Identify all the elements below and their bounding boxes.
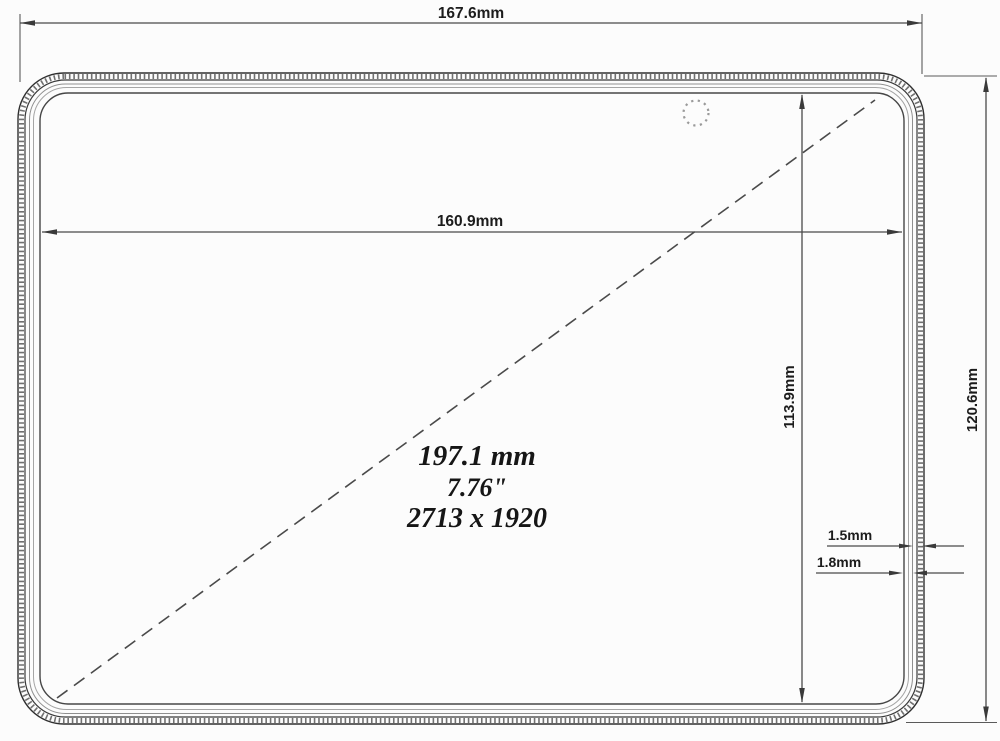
display-active-area	[40, 93, 904, 704]
dim-bezel-gap-1-8: 1.8mm	[816, 554, 964, 575]
technical-drawing-page: 167.6mm 160.9mm 113.9mm 120.6mm	[0, 0, 1000, 741]
display-dimension-drawing: 167.6mm 160.9mm 113.9mm 120.6mm	[0, 0, 1000, 741]
overall-width-label: 167.6mm	[438, 5, 504, 22]
dim-overall-width: 167.6mm	[20, 5, 922, 82]
camera-hole-icon	[684, 101, 709, 126]
arrowhead-down-icon	[799, 688, 805, 703]
arrowhead-left-icon	[42, 229, 57, 235]
arrowhead-left-icon	[20, 20, 35, 26]
dim-active-area-width: 160.9mm	[42, 213, 902, 235]
arrowhead-right-icon	[907, 20, 922, 26]
arrowhead-right-icon	[889, 571, 903, 576]
arrowhead-up-icon	[799, 94, 805, 109]
diagonal-inches-text: 7.76"	[447, 473, 507, 502]
active-height-label: 113.9mm	[781, 365, 798, 428]
arrowhead-down-icon	[983, 707, 989, 722]
arrowhead-up-icon	[983, 77, 989, 92]
dim-bezel-gap-1-5: 1.5mm	[827, 527, 964, 548]
arrowhead-right-icon	[899, 544, 913, 549]
arrowhead-left-icon	[913, 571, 927, 576]
overall-height-label: 120.6mm	[964, 368, 981, 432]
bezel-gap-1-label: 1.5mm	[828, 527, 872, 543]
diagonal-dimension-line	[57, 100, 875, 698]
diagonal-mm-text: 197.1 mm	[418, 440, 536, 472]
resolution-text: 2713 x 1920	[406, 503, 547, 534]
display-spec-text: 197.1 mm 7.76" 2713 x 1920	[406, 440, 547, 534]
active-width-label: 160.9mm	[437, 213, 503, 230]
bezel-gap-2-label: 1.8mm	[817, 554, 861, 570]
bezel-lip-inner-line	[34, 88, 909, 710]
dim-active-area-height: 113.9mm	[781, 94, 805, 703]
arrowhead-right-icon	[887, 229, 902, 235]
